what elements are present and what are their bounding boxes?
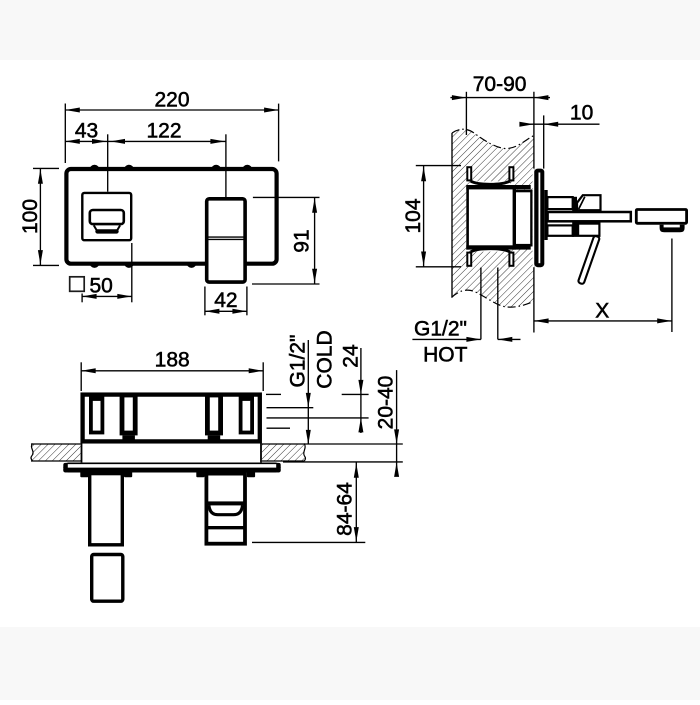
svg-text:G1/2": G1/2" [287, 335, 310, 388]
svg-text:X: X [595, 299, 609, 322]
svg-text:COLD: COLD [314, 330, 337, 388]
svg-text:50: 50 [90, 274, 113, 297]
svg-text:43: 43 [75, 120, 98, 143]
svg-text:20-40: 20-40 [375, 376, 398, 430]
svg-text:HOT: HOT [423, 344, 468, 367]
svg-text:104: 104 [402, 198, 425, 233]
svg-text:122: 122 [146, 120, 181, 143]
svg-text:91: 91 [291, 229, 314, 252]
svg-text:70-90: 70-90 [473, 73, 527, 96]
svg-text:188: 188 [155, 349, 190, 372]
svg-text:42: 42 [214, 289, 237, 312]
svg-text:G1/2": G1/2" [414, 317, 467, 340]
svg-text:24: 24 [340, 344, 363, 368]
svg-text:84-64: 84-64 [334, 482, 357, 536]
svg-text:220: 220 [154, 88, 189, 111]
svg-text:100: 100 [19, 199, 42, 234]
svg-text:10: 10 [570, 102, 593, 125]
